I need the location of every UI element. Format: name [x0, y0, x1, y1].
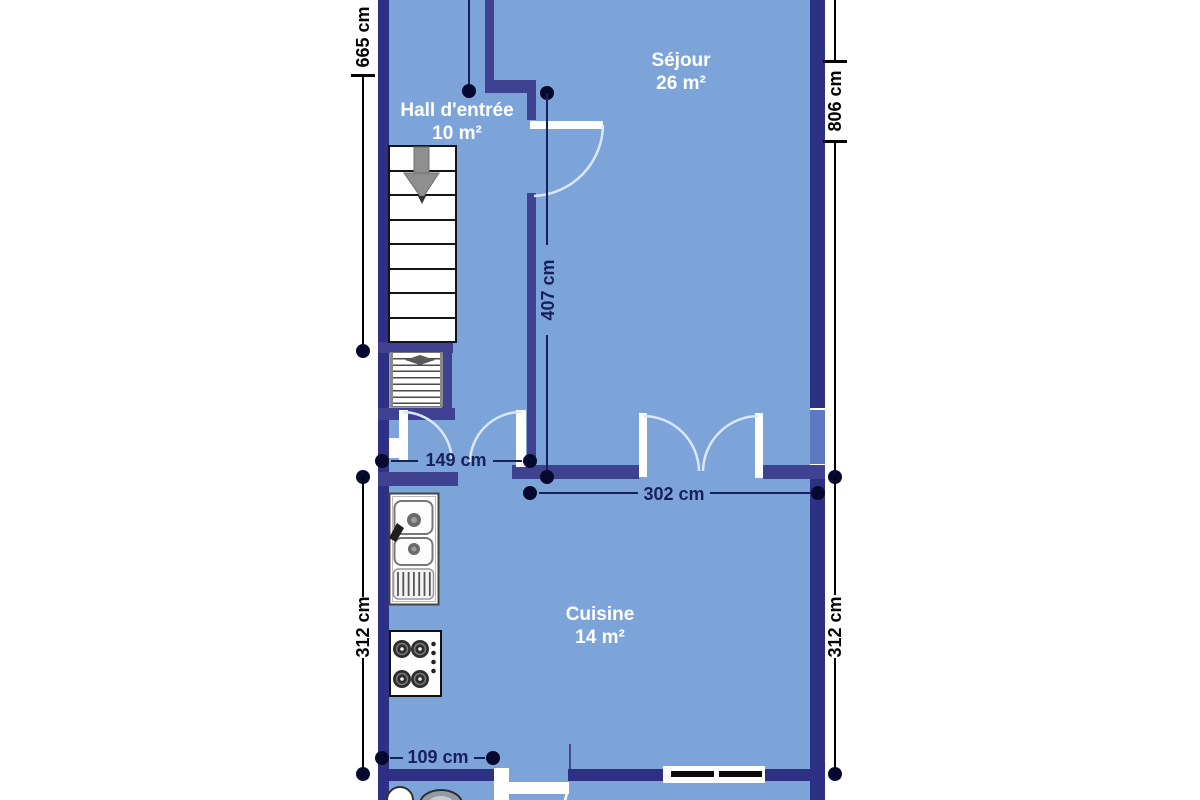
room-label-cuisine: Cuisine 14 m²	[520, 603, 680, 649]
stair-tread	[390, 319, 455, 342]
stair-tread	[390, 270, 455, 295]
dimension-line	[834, 0, 836, 60]
stair-tread	[390, 294, 455, 319]
floor-plan: Hall d'entrée 10 m² Séjour 26 m² Cuisine…	[0, 0, 1200, 800]
room-area: 10 m²	[377, 122, 537, 145]
dimension-label-407: 407 cm	[538, 250, 558, 330]
dimension-line	[539, 492, 638, 494]
dimension-dot	[375, 454, 389, 468]
door-jamb	[494, 768, 509, 800]
dimension-dot	[540, 470, 554, 484]
dimension-label-302: 302 cm	[629, 484, 719, 504]
dimension-line	[474, 757, 485, 759]
dimension-dot	[523, 454, 537, 468]
dimension-line	[546, 93, 548, 245]
door-leaf	[399, 410, 408, 460]
room-label-hall: Hall d'entrée 10 m²	[377, 99, 537, 145]
dimension-line	[468, 0, 470, 90]
dimension-label-665: 665 cm	[353, 0, 373, 77]
stair-tread	[390, 221, 455, 246]
washbasin-icon	[385, 784, 465, 800]
wall-hall-south-stub	[512, 465, 527, 479]
door-leaf	[530, 121, 603, 129]
dimension-dot	[356, 344, 370, 358]
dimension-dot	[523, 486, 537, 500]
dimension-line	[834, 658, 836, 774]
wall-hall-south	[378, 472, 458, 486]
dimension-line	[546, 335, 548, 477]
wall-sejour-cuisine-right	[763, 465, 825, 479]
dimension-label-312-left: 312 cm	[353, 587, 373, 667]
room-name: Hall d'entrée	[377, 99, 537, 122]
door-leaf	[639, 413, 647, 477]
closet-handle-icon	[404, 354, 436, 367]
dimension-dot	[356, 767, 370, 781]
dimension-dot	[462, 84, 476, 98]
stove-icon	[389, 630, 442, 697]
wall-exterior-bottom-right	[765, 769, 825, 781]
dimension-dot	[486, 751, 500, 765]
room-area: 14 m²	[520, 626, 680, 649]
stairs-down-arrow-icon	[398, 140, 448, 205]
dimension-line	[362, 77, 364, 351]
wall-exterior-right	[810, 0, 825, 800]
wall-hall-sejour-top	[485, 0, 494, 92]
dimension-dot	[811, 486, 825, 500]
dimension-line	[493, 460, 522, 462]
stair-tread	[390, 245, 455, 270]
window-icon	[810, 408, 825, 466]
room-label-sejour: Séjour 26 m²	[601, 49, 761, 95]
dimension-label-109: 109 cm	[393, 747, 483, 767]
kitchen-sink-icon	[388, 492, 440, 606]
dimension-line	[834, 477, 836, 595]
window-pane	[671, 771, 714, 777]
room-area: 26 m²	[601, 72, 761, 95]
wall-closet-south	[378, 408, 455, 420]
dimension-line	[710, 492, 812, 494]
dimension-label-149: 149 cm	[411, 450, 501, 470]
door-leaf	[509, 782, 569, 794]
wall-exterior-bottom-left	[378, 769, 494, 781]
wall-exterior-bottom-mid	[568, 769, 665, 781]
door-leaf	[755, 413, 763, 478]
dimension-dot	[375, 751, 389, 765]
room-name: Séjour	[601, 49, 761, 72]
dimension-label-806: 806 cm	[825, 61, 845, 141]
wall-hall-sejour-main	[527, 193, 536, 478]
dimension-dot	[828, 767, 842, 781]
dimension-label-312-right: 312 cm	[825, 587, 845, 667]
dimension-line	[362, 658, 364, 774]
room-name: Cuisine	[520, 603, 680, 626]
dimension-line	[362, 477, 364, 597]
window-pane	[719, 771, 762, 777]
dimension-line	[834, 143, 836, 477]
